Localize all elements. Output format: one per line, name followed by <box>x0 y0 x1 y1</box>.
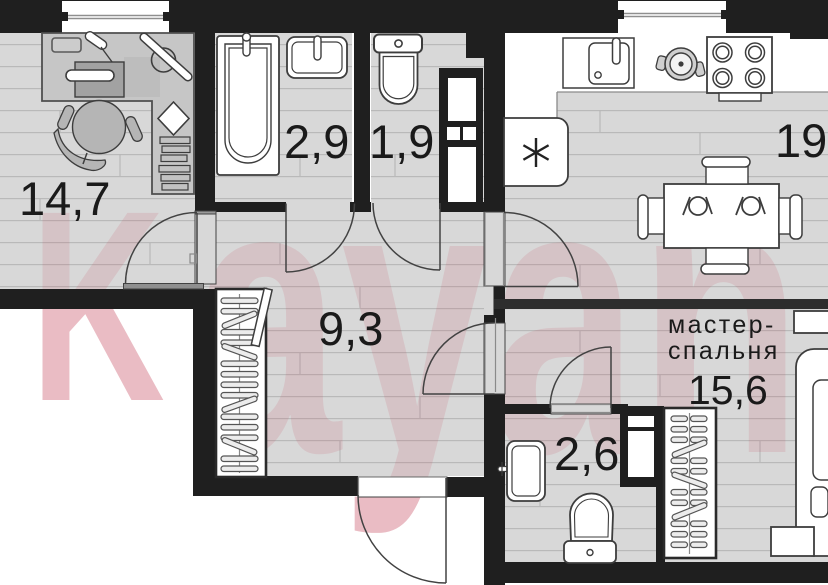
svg-text:15,6: 15,6 <box>688 367 768 413</box>
svg-text:1,9: 1,9 <box>369 115 434 168</box>
svg-text:9,3: 9,3 <box>318 302 383 355</box>
svg-text:спальня: спальня <box>668 337 780 365</box>
svg-text:мастер-: мастер- <box>668 311 776 339</box>
svg-text:14,7: 14,7 <box>19 172 110 225</box>
svg-text:2,6: 2,6 <box>554 427 619 480</box>
svg-text:19,: 19, <box>775 114 828 167</box>
svg-text:2,9: 2,9 <box>284 115 349 168</box>
